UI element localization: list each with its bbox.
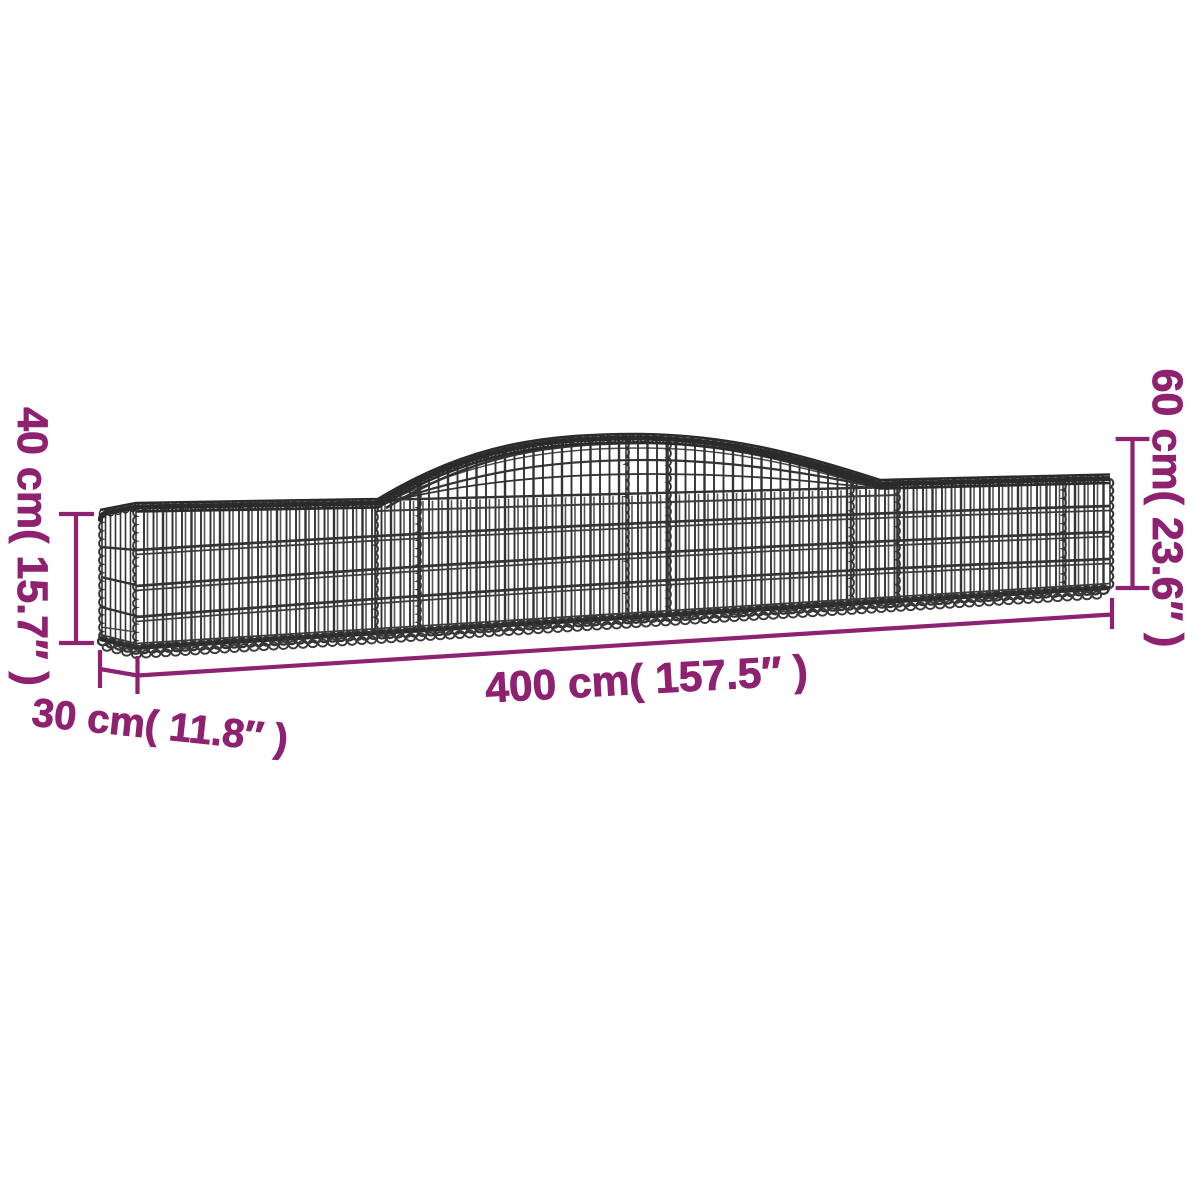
svg-text:60 cm( 23.6″ ): 60 cm( 23.6″ ) (1143, 369, 1191, 648)
svg-text:40 cm( 15.7″ ): 40 cm( 15.7″ ) (8, 407, 56, 686)
